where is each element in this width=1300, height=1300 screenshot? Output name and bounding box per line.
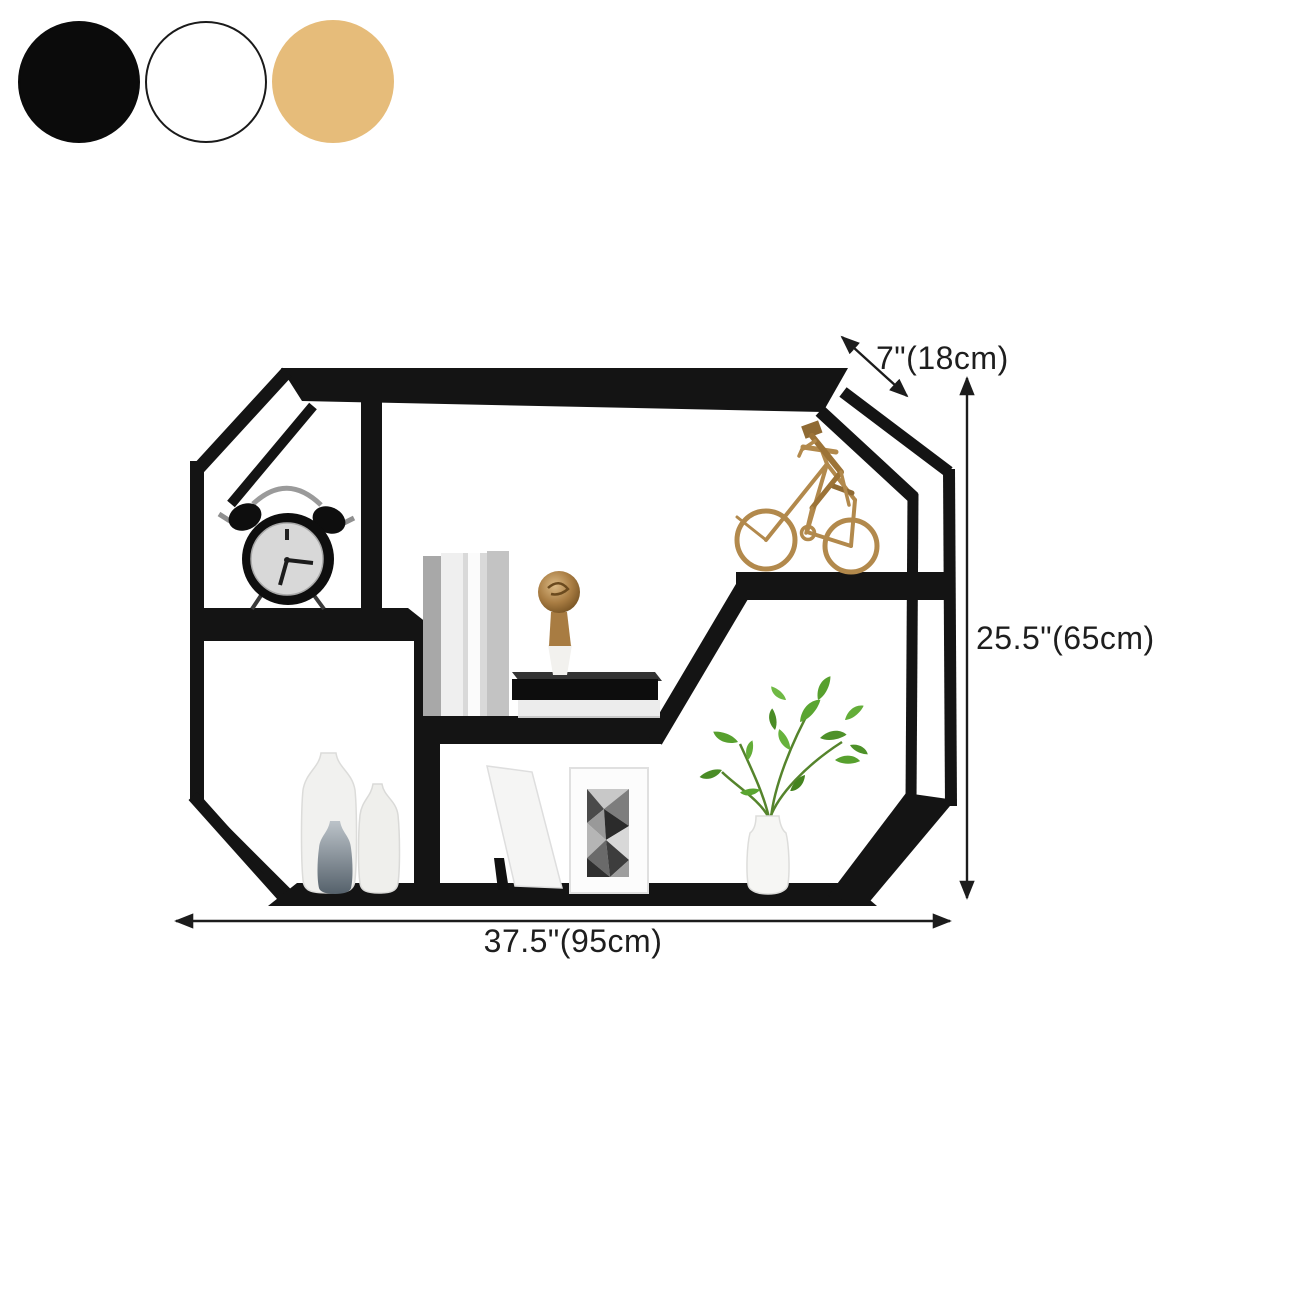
gold-finial-decor xyxy=(538,571,580,675)
photo-frames-decor xyxy=(487,766,648,893)
potted-plant-decor xyxy=(700,675,869,894)
depth-dimension-label: 7"(18cm) xyxy=(876,340,1009,376)
books-decor xyxy=(423,551,662,717)
product-image: 7"(18cm) 25.5"(65cm) 37.5"(95cm) xyxy=(0,0,1300,1300)
alarm-clock-decor xyxy=(219,488,354,609)
vases-decor xyxy=(302,753,400,894)
width-dimension-label: 37.5"(95cm) xyxy=(484,923,663,959)
product-dimension-view: 7"(18cm) 25.5"(65cm) 37.5"(95cm) xyxy=(0,0,1300,1300)
leaves xyxy=(700,675,869,798)
height-dimension-label: 25.5"(65cm) xyxy=(976,620,1155,656)
